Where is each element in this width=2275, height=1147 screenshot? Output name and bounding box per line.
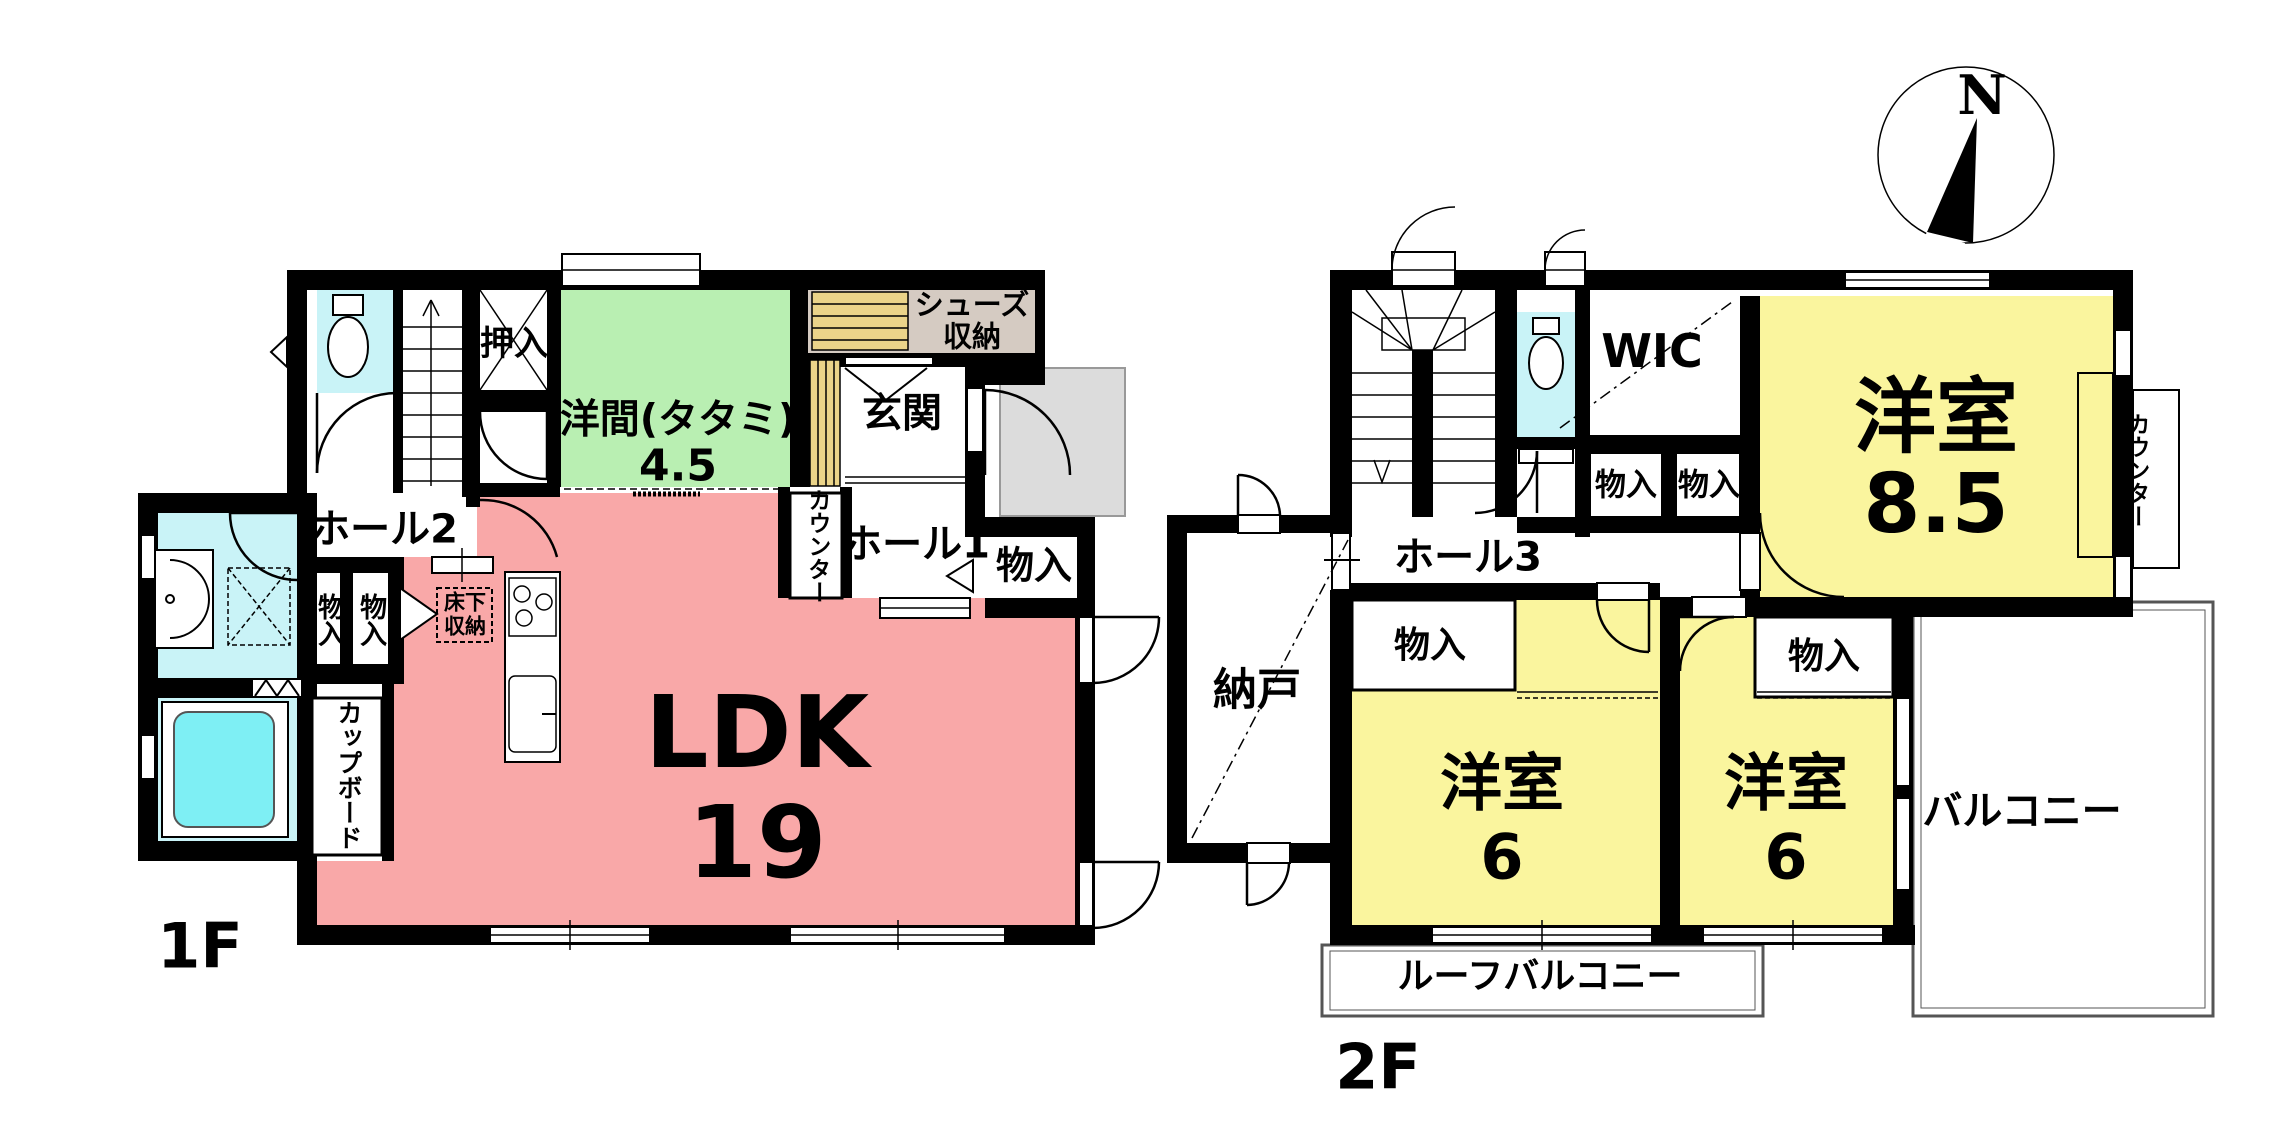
toilet-icon-2f xyxy=(1529,318,1563,389)
label-y6r-size: 6 xyxy=(1764,822,1807,891)
label-roof-balcony: ルーフバルコニー xyxy=(1397,957,1682,997)
sink-icon xyxy=(155,550,213,648)
label-monoire-a: 物入 xyxy=(313,593,343,647)
label-monoire-b: 物入 xyxy=(355,593,385,647)
label-counter-2f: カウンター xyxy=(2122,413,2148,528)
floor-plan-page: LDK 19 洋間(タタミ) 4.5 押入 シューズ 収納 玄関 ホール1 ホー… xyxy=(0,0,2275,1147)
label-floor-2f: 2F xyxy=(1335,1032,1421,1101)
label-youma-size: 4.5 xyxy=(639,441,717,490)
label-hall3: ホール3 xyxy=(1394,536,1542,581)
label-monoire-6r: 物入 xyxy=(1788,637,1860,677)
kitchen-icon xyxy=(505,572,560,762)
label-youma-name: 洋間(タタミ) xyxy=(560,398,797,443)
label-y85-name: 洋室 xyxy=(1854,372,2018,464)
folding-door-icon xyxy=(253,680,301,696)
label-genkan: 玄関 xyxy=(862,392,942,437)
label-y6r-name: 洋室 xyxy=(1724,748,1848,817)
label-y6l-name: 洋室 xyxy=(1440,748,1564,817)
stairs-1f-icon xyxy=(403,300,462,486)
label-balcony: バルコニー xyxy=(1922,790,2121,835)
label-counter-1f: カウンター xyxy=(803,489,829,604)
label-floor-1f: 1F xyxy=(157,911,243,980)
compass-north-label: N xyxy=(1957,65,2006,125)
floor-plan-drawing xyxy=(0,0,2275,1147)
label-nando: 納戸 xyxy=(1213,665,1301,714)
label-hall2: ホール2 xyxy=(310,508,458,553)
label-monoire-hall1: 物入 xyxy=(996,545,1072,588)
label-yukashita: 床下 収納 xyxy=(444,591,486,638)
label-cupboard: カップボード xyxy=(334,700,362,850)
bathtub-icon xyxy=(162,702,288,837)
label-hall1: ホール1 xyxy=(842,523,990,568)
label-monoire-6l: 物入 xyxy=(1394,626,1466,666)
label-ldk-name: LDK xyxy=(645,677,869,789)
label-ldk-size: 19 xyxy=(687,787,826,899)
label-y85-size: 8.5 xyxy=(1863,459,2008,551)
label-oshiire: 押入 xyxy=(480,325,548,363)
label-shoes-storage: シューズ 収納 xyxy=(915,289,1030,354)
label-y6l-size: 6 xyxy=(1480,822,1523,891)
toilet-icon-1f xyxy=(328,295,368,377)
label-monoire-2f-1: 物入 xyxy=(1595,469,1657,504)
label-monoire-2f-2: 物入 xyxy=(1678,469,1740,504)
label-wic: WIC xyxy=(1601,326,1703,378)
